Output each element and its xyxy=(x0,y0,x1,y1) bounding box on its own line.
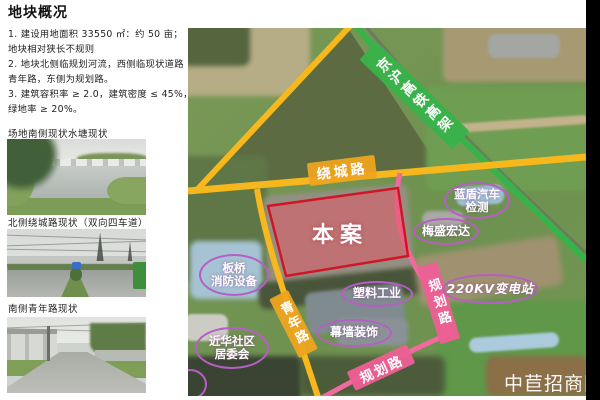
poi-curtain-wall-decoration: 幕墙装饰 xyxy=(316,319,392,347)
photo-caption-pond: 场地南侧现状水塘现状 xyxy=(8,126,108,140)
site-plot-label: 本案 xyxy=(292,218,388,248)
poi-plastic-industry: 塑料工业 xyxy=(341,281,413,307)
raocheng-road-line xyxy=(188,157,586,191)
photo-grass-bank xyxy=(107,177,146,204)
photo-willow-tree xyxy=(7,139,60,192)
site-map: 绕城路 青年路 规划路 规划路 京沪高铁高架 蓝盾汽车 检测 梅盛宏达 板桥 消… xyxy=(188,28,586,396)
note-line: 2. 地块北侧临规划河流，西侧临现状道路 xyxy=(8,57,188,72)
note-line: 绿地率 ≥ 20%。 xyxy=(8,102,188,117)
poi-jinhua-community-committee: 近华社区 居委会 xyxy=(195,327,269,369)
right-black-bar xyxy=(586,0,600,400)
utility-pole xyxy=(47,326,50,361)
note-line: 3. 建筑容积率 ≥ 2.0，建筑密度 ≤ 45%， xyxy=(8,87,188,102)
photo-caption-qingnian-road: 南侧青年路现状 xyxy=(8,301,78,315)
poi-meisheng-hongda: 梅盛宏达 xyxy=(413,218,479,245)
watermark: 中苣招商网 xyxy=(504,369,586,396)
median-shrub xyxy=(70,268,83,280)
photo-caption-ring-road: 北侧绕城路现状（双向四车道） xyxy=(8,215,148,229)
note-line: 1. 建设用地面积 33550 ㎡：约 50 亩； xyxy=(8,27,188,42)
page-title: 地块概况 xyxy=(8,2,68,22)
poi-banqiao-fire-equipment: 板桥 消防设备 xyxy=(199,254,269,296)
photo-ring-road xyxy=(7,229,146,297)
note-line: 地块相对狭长不规则 xyxy=(8,42,188,57)
photo-qingnian-road xyxy=(7,317,146,393)
road-sign xyxy=(72,262,82,269)
green-truck xyxy=(133,262,146,289)
poi-220kv-substation: 220KV变电站 xyxy=(442,274,538,304)
notes-block: 1. 建设用地面积 33550 ㎡：约 50 亩； 地块相对狭长不规则 2. 地… xyxy=(8,27,188,117)
note-line: 青年路，东侧为规划路。 xyxy=(8,72,188,87)
photo-pond xyxy=(7,139,146,215)
poi-landun-auto-inspection: 蓝盾汽车 检测 xyxy=(444,182,510,219)
